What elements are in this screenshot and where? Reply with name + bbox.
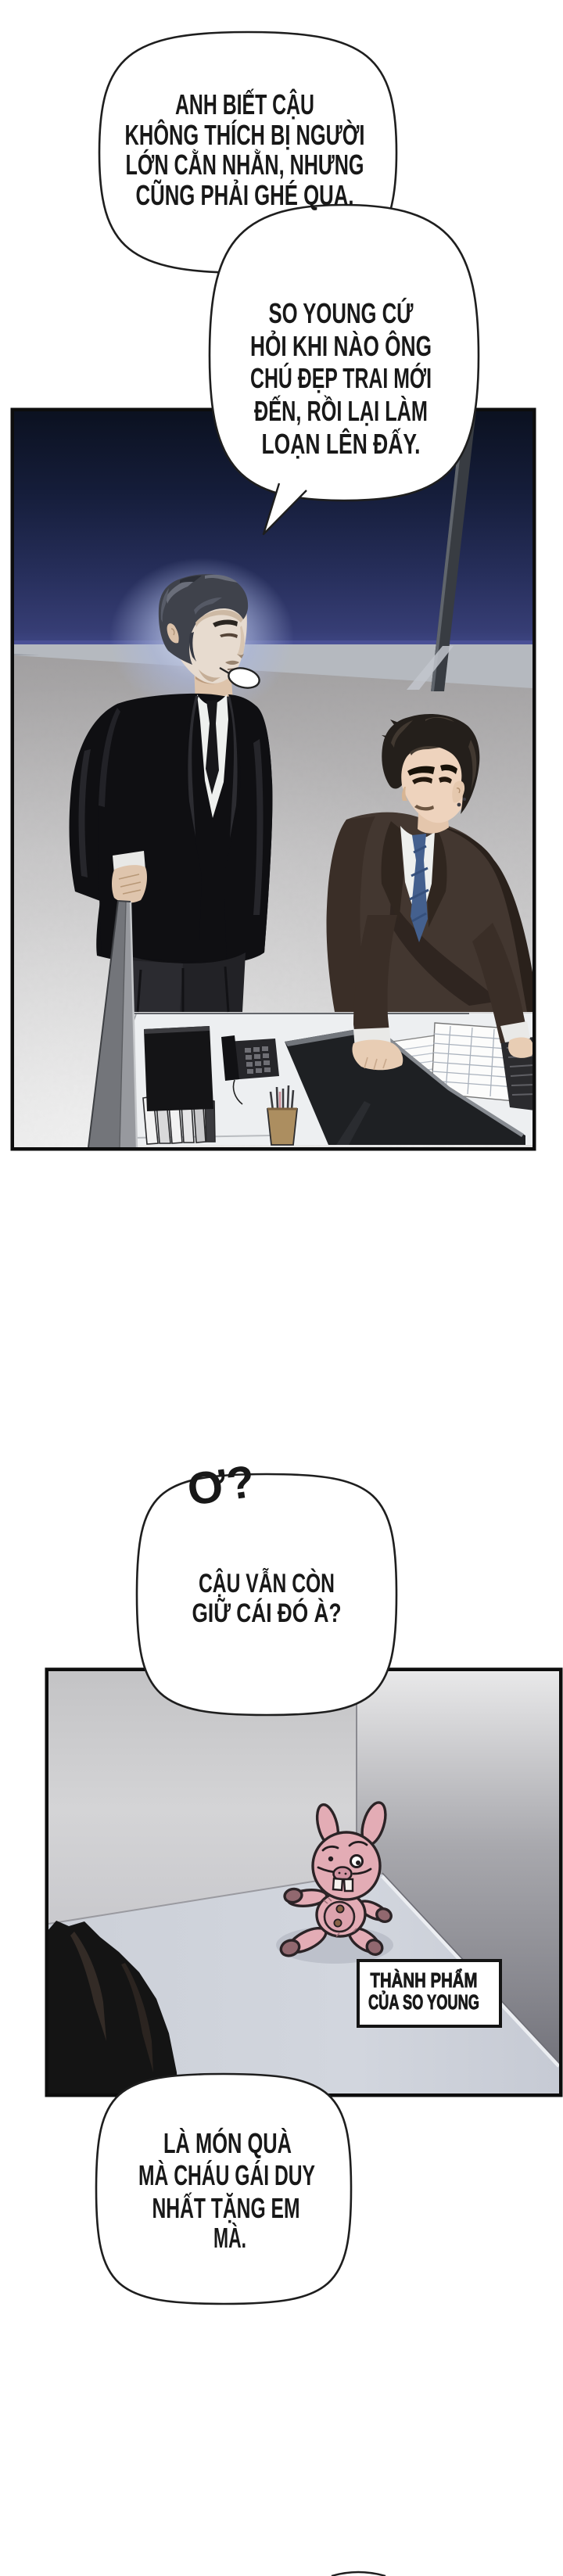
svg-text:NHẤT TẶNG EM: NHẤT TẶNG EM: [152, 2192, 300, 2224]
svg-text:CHÚ ĐẸP TRAI MỚI: CHÚ ĐẸP TRAI MỚI: [250, 361, 432, 394]
svg-text:MÀ CHÁU GÁI DUY: MÀ CHÁU GÁI DUY: [138, 2159, 315, 2191]
svg-text:GIỮ CÁI ĐÓ À?: GIỮ CÁI ĐÓ À?: [192, 1598, 342, 1628]
svg-text:MÀ.: MÀ.: [213, 2222, 246, 2254]
svg-text:ĐẾN, RỒI LẠI LÀM: ĐẾN, RỒI LẠI LÀM: [254, 394, 428, 427]
svg-text:KHÔNG THÍCH BỊ NGƯỜI: KHÔNG THÍCH BỊ NGƯỜI: [125, 118, 365, 151]
svg-text:HỎI KHI NÀO ÔNG: HỎI KHI NÀO ÔNG: [250, 329, 432, 362]
svg-text:LÀ MÓN QUÀ: LÀ MÓN QUÀ: [163, 2126, 292, 2159]
svg-text:CỦA SO YOUNG: CỦA SO YOUNG: [368, 1989, 479, 2014]
svg-text:Ơ?: Ơ?: [185, 1455, 259, 1515]
svg-text:CŨNG PHẢI GHÉ QUA.: CŨNG PHẢI GHÉ QUA.: [136, 178, 354, 211]
svg-text:LỚN CẰN NHẰN, NHƯNG: LỚN CẰN NHẰN, NHƯNG: [126, 148, 364, 181]
svg-text:THÀNH PHẨM: THÀNH PHẨM: [371, 1968, 478, 1992]
svg-text:LOẠN LÊN ĐẤY.: LOẠN LÊN ĐẤY.: [262, 427, 421, 460]
svg-text:CẬU VẪN CÒN: CẬU VẪN CÒN: [199, 1569, 335, 1598]
svg-text:SO YOUNG CỨ: SO YOUNG CỨ: [269, 296, 414, 329]
svg-text:ANH BIẾT CẬU: ANH BIẾT CẬU: [175, 88, 314, 120]
